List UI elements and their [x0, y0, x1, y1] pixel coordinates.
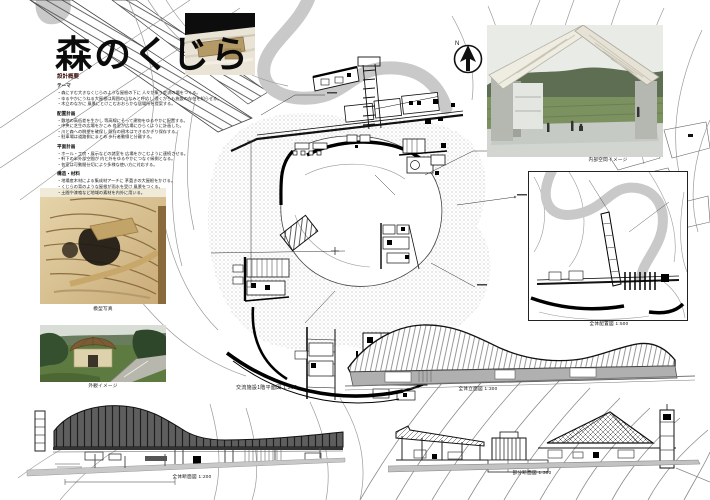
- north-arrow-icon: N: [450, 36, 486, 76]
- north-label: N: [455, 41, 459, 47]
- section-heading: テーマ: [57, 83, 257, 89]
- right-section-caption: 部分断面図 1:300: [462, 470, 602, 476]
- exterior-photo: [40, 325, 166, 382]
- project-title: 森のくじら: [55, 24, 295, 78]
- statement-section: 平面計画 ・ホール・工房・展示などの諸室を 広場をかこむように連続させる。 ・軒…: [57, 144, 257, 168]
- main-plan-caption: 交流施設1階平面図 1:200: [236, 384, 406, 391]
- mid-elevation-caption: 全体立面図 1:300: [408, 386, 548, 392]
- section-body: ・ホール・工房・展示などの諸室を 広場をかこむように連続させる。 ・軒下の半外部…: [57, 151, 257, 168]
- render-caption: 内部空間イメージ: [548, 157, 668, 163]
- design-statement: 設計概要 テーマ ・森にすむ大きなくじらのような屋根の下に 人々が集う交流の場を…: [57, 72, 257, 199]
- site-model-caption: 模型写真: [63, 306, 143, 312]
- overall-plan-caption: 全体配置図 1:500: [549, 321, 669, 327]
- left-section-caption: 全体断面図 1:200: [122, 474, 262, 480]
- statement-section: テーマ ・森にすむ大きなくじらのような屋根の下に 人々が集う交流の場をつくる。 …: [57, 83, 257, 107]
- overall-site-plan: [528, 171, 688, 321]
- presentation-board: 森のくじら 設計概要 テーマ ・森にすむ大きなくじらのような屋根の下に 人々が集…: [0, 0, 710, 500]
- statement-section: 配置計画 ・敷地の高低差を生かし 等高線にそって建物をゆるやかに配置する。 ・中…: [57, 111, 257, 140]
- design-statement-heading: 設計概要: [57, 72, 257, 80]
- section-heading: 平面計画: [57, 144, 257, 150]
- section-drawing-right: [388, 402, 710, 490]
- section-body: ・敷地の高低差を生かし 等高線にそって建物をゆるやかに配置する。 ・中央に芝生の…: [57, 118, 257, 140]
- section-body: ・森にすむ大きなくじらのような屋根の下に 人々が集う交流の場をつくる。 ・ゆるや…: [57, 90, 257, 107]
- section-heading: 構造・材料: [57, 171, 257, 177]
- section-body: ・地場産木材による集成材アーチに 茅葺きの大屋根をかける。 ・くじらの背のような…: [57, 178, 257, 195]
- site-model-photo: [40, 188, 166, 304]
- statement-section: 構造・材料 ・地場産木材による集成材アーチに 茅葺きの大屋根をかける。 ・くじら…: [57, 171, 257, 195]
- interior-render-photo: [487, 25, 663, 157]
- exterior-photo-caption: 外観イメージ: [63, 383, 143, 389]
- section-heading: 配置計画: [57, 111, 257, 117]
